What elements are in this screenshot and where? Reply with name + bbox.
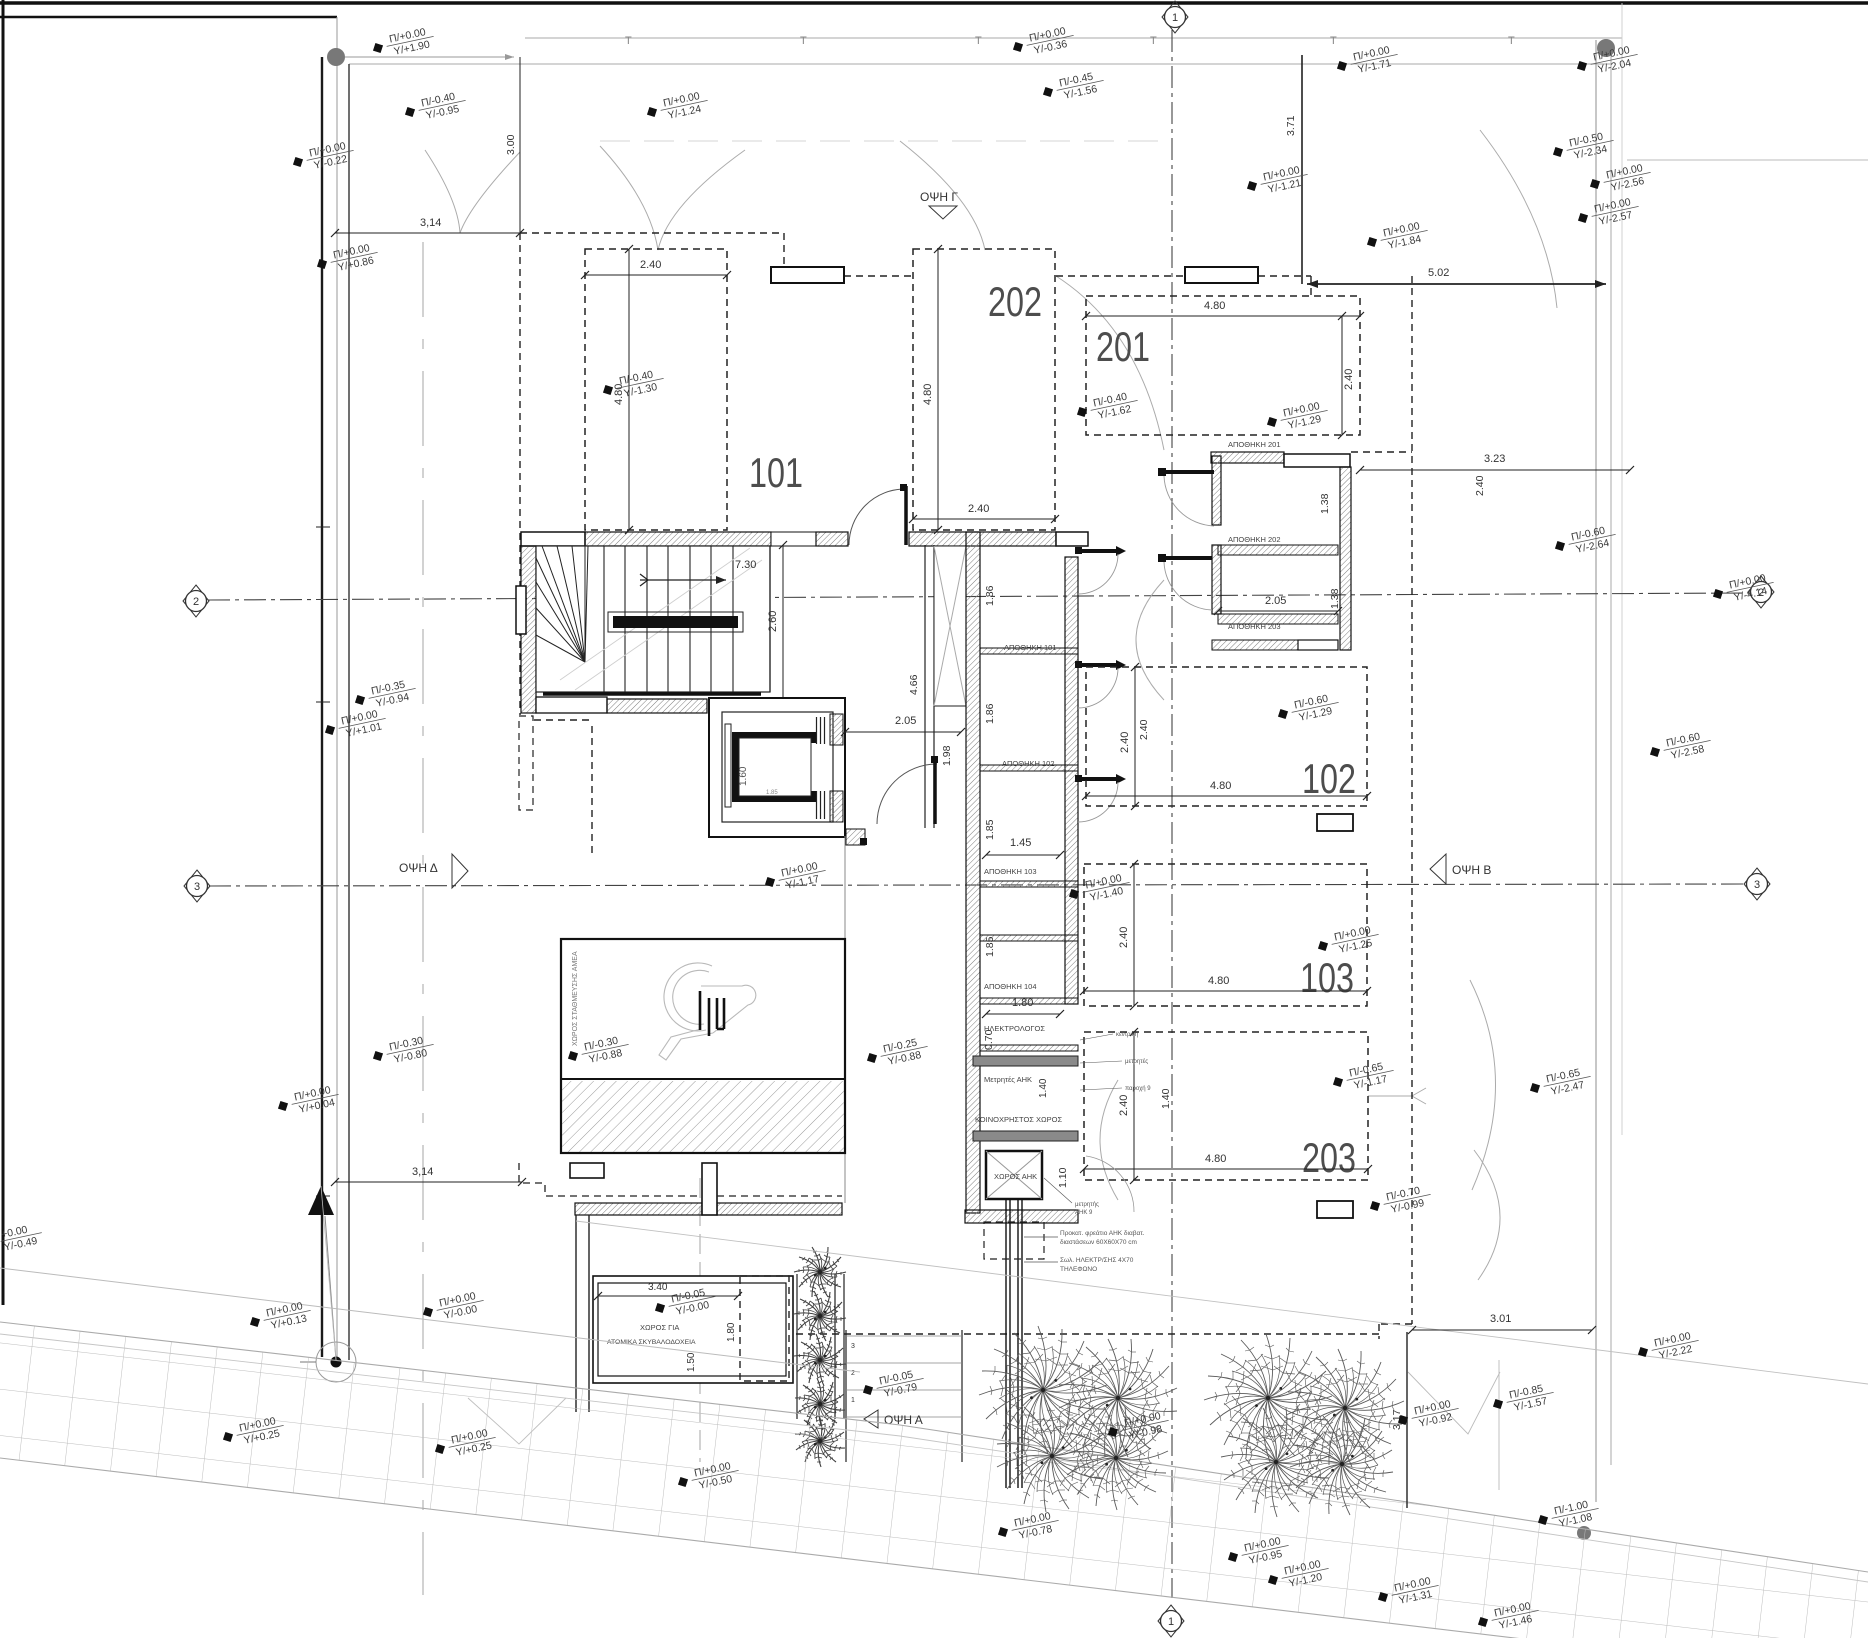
svg-text:2.40: 2.40	[1118, 1095, 1130, 1116]
svg-text:2.05: 2.05	[895, 715, 916, 727]
svg-text:2.60: 2.60	[767, 611, 779, 632]
svg-text:2: 2	[193, 596, 199, 608]
svg-text:ΚΟΙΝΟΧΡΗΣΤΟΣ ΧΩΡΟΣ: ΚΟΙΝΟΧΡΗΣΤΟΣ ΧΩΡΟΣ	[975, 1115, 1062, 1124]
svg-text:1.80: 1.80	[726, 1322, 737, 1342]
svg-text:4.80: 4.80	[1205, 1153, 1226, 1165]
svg-text:ΑΠΟΘΗΚΗ 101: ΑΠΟΘΗΚΗ 101	[1004, 643, 1057, 652]
svg-text:103: 103	[1300, 954, 1354, 1001]
svg-text:T: T	[1508, 35, 1515, 47]
svg-text:T: T	[1330, 35, 1337, 47]
svg-text:2.40: 2.40	[968, 503, 989, 515]
svg-text:5.02: 5.02	[1428, 267, 1449, 279]
svg-text:2.40: 2.40	[1343, 369, 1355, 390]
svg-text:T: T	[975, 35, 982, 47]
svg-text:ΤΗΛΕΦΩΝΟ: ΤΗΛΕΦΩΝΟ	[1060, 1266, 1097, 1273]
svg-text:ΑΤΟΜΙΚΑ ΣΚΥΒΑΛΟΔΟΧΕΙΑ: ΑΤΟΜΙΚΑ ΣΚΥΒΑΛΟΔΟΧΕΙΑ	[607, 1339, 696, 1346]
svg-text:2.40: 2.40	[1138, 719, 1150, 740]
svg-text:2.40: 2.40	[1118, 927, 1130, 948]
svg-text:1.98: 1.98	[941, 745, 953, 766]
svg-text:202: 202	[988, 278, 1042, 325]
svg-text:4.80: 4.80	[1210, 780, 1231, 792]
svg-text:1.38: 1.38	[1319, 493, 1331, 514]
svg-text:1.40: 1.40	[1038, 1078, 1049, 1098]
svg-text:3.40: 3.40	[648, 1282, 668, 1293]
svg-text:1.85: 1.85	[984, 819, 996, 840]
svg-text:3.01: 3.01	[1490, 1313, 1511, 1325]
svg-text:3: 3	[851, 1343, 855, 1350]
svg-text:ΑΠΟΘΗΚΗ 203: ΑΠΟΘΗΚΗ 203	[1228, 622, 1281, 631]
svg-text:παροχή 9: παροχή 9	[1125, 1085, 1151, 1092]
svg-text:Μετρητές ΑΗΚ: Μετρητές ΑΗΚ	[984, 1075, 1032, 1084]
svg-text:1.80: 1.80	[1012, 997, 1033, 1009]
svg-text:201: 201	[1096, 323, 1150, 370]
svg-text:ΑΗΚ 9: ΑΗΚ 9	[1075, 1210, 1093, 1216]
svg-text:2.40: 2.40	[1474, 475, 1486, 496]
svg-text:1.60: 1.60	[738, 766, 749, 786]
svg-text:2.40: 2.40	[640, 259, 661, 271]
svg-text:1: 1	[851, 1397, 855, 1404]
svg-text:ΧΩΡΟΣ ΓΙΑ: ΧΩΡΟΣ ΓΙΑ	[640, 1323, 679, 1332]
svg-text:ΑΠΟΘΗΚΗ 201: ΑΠΟΘΗΚΗ 201	[1228, 440, 1281, 449]
svg-text:4.66: 4.66	[908, 674, 920, 695]
svg-text:ΧΩΡΟΣ ΑΗΚ: ΧΩΡΟΣ ΑΗΚ	[994, 1172, 1037, 1181]
svg-text:κεντρική: κεντρική	[1116, 1031, 1138, 1038]
svg-text:Προκατ. φρεάτιο ΑΗΚ διαβατ.: Προκατ. φρεάτιο ΑΗΚ διαβατ.	[1060, 1229, 1145, 1237]
svg-text:ΑΠΟΘΗΚΗ 102: ΑΠΟΘΗΚΗ 102	[1002, 759, 1055, 768]
svg-text:2.05: 2.05	[1265, 595, 1286, 607]
svg-text:1.45: 1.45	[1010, 837, 1031, 849]
svg-text:1.40: 1.40	[1160, 1088, 1172, 1109]
svg-text:διαστάσεων 60Χ60Χ70 cm: διαστάσεων 60Χ60Χ70 cm	[1060, 1238, 1137, 1246]
svg-text:T: T	[800, 35, 807, 47]
svg-text:1.85: 1.85	[984, 936, 996, 957]
svg-text:μετρητής: μετρητής	[1075, 1201, 1099, 1208]
svg-text:0.70: 0.70	[983, 1029, 995, 1050]
svg-text:μετρητές: μετρητές	[1125, 1058, 1148, 1065]
svg-text:1.86: 1.86	[984, 585, 996, 606]
svg-text:1: 1	[1168, 1616, 1174, 1628]
svg-text:1: 1	[1172, 12, 1178, 24]
svg-text:4.80: 4.80	[922, 384, 934, 405]
svg-text:203: 203	[1302, 1134, 1356, 1181]
svg-text:ΟΨΗ Γ: ΟΨΗ Γ	[920, 190, 958, 204]
svg-text:1.38: 1.38	[1329, 588, 1341, 609]
svg-text:ΧΩΡΟΣ ΣΤΑΘΜΕΥΣΗΣ ΑΜΕΑ: ΧΩΡΟΣ ΣΤΑΘΜΕΥΣΗΣ ΑΜΕΑ	[572, 951, 579, 1046]
svg-text:1.50: 1.50	[686, 1352, 697, 1372]
svg-text:3,14: 3,14	[412, 1166, 433, 1178]
svg-text:2.40: 2.40	[1119, 732, 1131, 753]
svg-text:T: T	[1150, 35, 1157, 47]
svg-text:3.00: 3.00	[505, 134, 517, 155]
svg-text:T: T	[625, 35, 632, 47]
svg-text:3: 3	[1754, 879, 1760, 891]
svg-text:ΑΠΟΘΗΚΗ 103: ΑΠΟΘΗΚΗ 103	[984, 867, 1037, 876]
svg-text:3.71: 3.71	[1285, 115, 1297, 136]
svg-text:4.80: 4.80	[1208, 975, 1229, 987]
svg-text:102: 102	[1302, 755, 1356, 802]
svg-text:Σωλ. ΗΛΕΚΤΡ/ΣΗΣ 4Χ70: Σωλ. ΗΛΕΚΤΡ/ΣΗΣ 4Χ70	[1060, 1257, 1134, 1264]
svg-text:ΑΠΟΘΗΚΗ 104: ΑΠΟΘΗΚΗ 104	[984, 982, 1037, 991]
svg-text:3,14: 3,14	[420, 217, 441, 229]
svg-text:3: 3	[194, 881, 200, 893]
svg-text:1.85: 1.85	[766, 790, 778, 796]
svg-text:ΟΨΗ Δ: ΟΨΗ Δ	[399, 861, 438, 875]
svg-text:4.80: 4.80	[1204, 300, 1225, 312]
svg-text:7.30: 7.30	[735, 559, 756, 571]
svg-text:ΟΨΗ Β: ΟΨΗ Β	[1452, 863, 1491, 877]
svg-text:1.86: 1.86	[984, 703, 996, 724]
svg-text:ΑΠΟΘΗΚΗ 202: ΑΠΟΘΗΚΗ 202	[1228, 535, 1281, 544]
svg-text:3.23: 3.23	[1484, 453, 1505, 465]
svg-text:1.10: 1.10	[1057, 1167, 1069, 1188]
svg-text:101: 101	[749, 449, 803, 496]
